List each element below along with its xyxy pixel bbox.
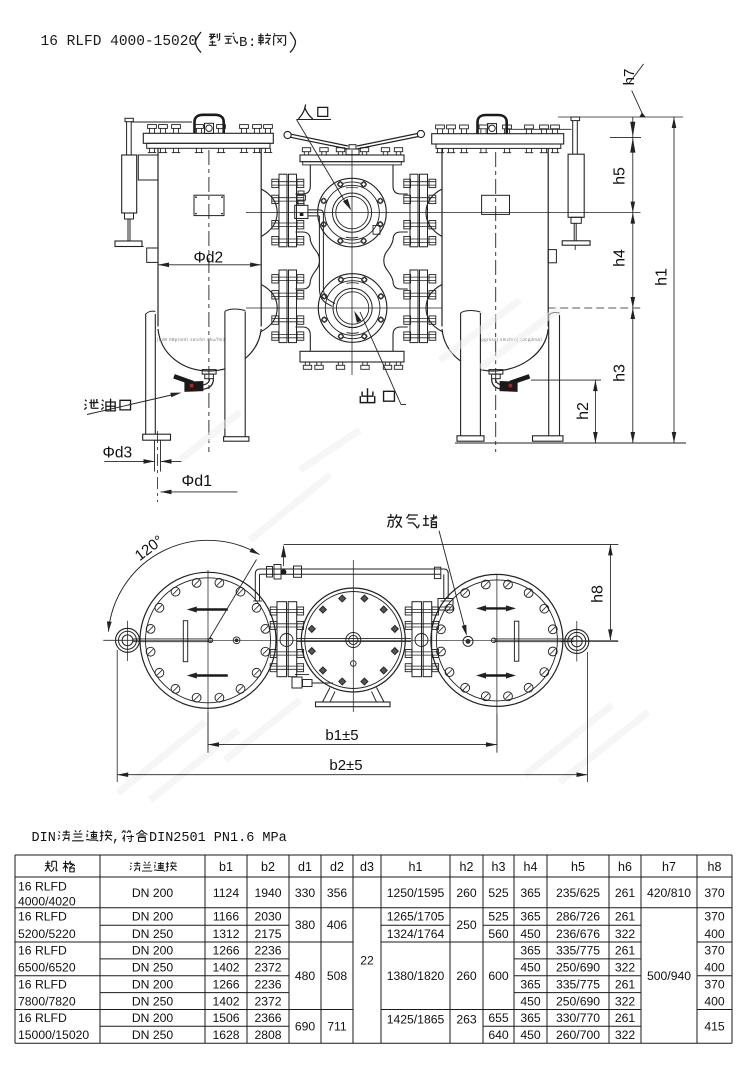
svg-text:h3: h3 <box>612 364 629 382</box>
svg-text:365: 365 <box>520 1011 541 1025</box>
svg-text:b2: b2 <box>261 860 275 874</box>
svg-text:322: 322 <box>615 927 636 941</box>
svg-text:DN 200: DN 200 <box>132 886 174 900</box>
svg-text:250/690: 250/690 <box>556 961 600 975</box>
svg-text:2808: 2808 <box>254 1028 281 1042</box>
svg-text:,: , <box>112 831 120 846</box>
svg-text:DIN2501 PN1.6 MPa: DIN2501 PN1.6 MPa <box>149 831 287 846</box>
svg-text:Φd2: Φd2 <box>194 250 224 267</box>
svg-text:1380/1820: 1380/1820 <box>387 969 445 983</box>
svg-text:h4: h4 <box>612 249 629 267</box>
svg-text:260/700: 260/700 <box>556 1028 600 1042</box>
svg-text:400: 400 <box>704 994 725 1008</box>
svg-text:DN 250: DN 250 <box>132 961 174 975</box>
svg-text:DIN: DIN <box>32 831 56 846</box>
svg-text:261: 261 <box>615 1011 636 1025</box>
svg-text:h1: h1 <box>409 860 423 874</box>
svg-text:b2±5: b2±5 <box>329 757 362 774</box>
svg-text:508: 508 <box>327 969 348 983</box>
svg-text:250/690: 250/690 <box>556 994 600 1008</box>
svg-text:236/676: 236/676 <box>556 927 600 941</box>
svg-text:b1±5: b1±5 <box>325 727 358 744</box>
svg-text:16 RLFD: 16 RLFD <box>18 944 67 958</box>
svg-text:380: 380 <box>295 918 316 932</box>
svg-text:1324/1764: 1324/1764 <box>387 927 445 941</box>
svg-text::: : <box>248 35 256 51</box>
svg-text:600: 600 <box>488 969 509 983</box>
svg-text:6500/6520: 6500/6520 <box>18 961 76 975</box>
svg-text:261: 261 <box>615 910 636 924</box>
svg-text:DN 200: DN 200 <box>132 944 174 958</box>
svg-text:1124: 1124 <box>213 886 239 900</box>
svg-text:322: 322 <box>615 994 636 1008</box>
svg-text:330: 330 <box>295 886 316 900</box>
svg-text:711: 711 <box>327 1020 347 1034</box>
svg-text:365: 365 <box>520 978 541 992</box>
svg-text:260: 260 <box>456 886 477 900</box>
svg-text:370: 370 <box>704 886 725 900</box>
svg-text:2236: 2236 <box>254 944 281 958</box>
svg-text:370: 370 <box>704 910 725 924</box>
svg-text:370: 370 <box>704 944 725 958</box>
svg-text:15000/15020: 15000/15020 <box>18 1028 89 1042</box>
svg-text:16 RLFD: 16 RLFD <box>18 910 67 924</box>
svg-text:365: 365 <box>520 944 541 958</box>
svg-text:365: 365 <box>520 910 541 924</box>
svg-text:1425/1865: 1425/1865 <box>387 1012 445 1026</box>
svg-text:2372: 2372 <box>254 994 281 1008</box>
svg-text:2372: 2372 <box>254 961 281 975</box>
svg-text:h1: h1 <box>654 268 671 286</box>
svg-text:16 RLFD: 16 RLFD <box>18 978 67 992</box>
svg-text:406: 406 <box>327 918 348 932</box>
svg-text:1402: 1402 <box>212 994 239 1008</box>
svg-text:640: 640 <box>488 1028 509 1042</box>
svg-text:690: 690 <box>295 1020 316 1034</box>
svg-text:525: 525 <box>488 886 509 900</box>
svg-text:h7: h7 <box>662 860 676 874</box>
svg-text:h5: h5 <box>571 860 585 874</box>
svg-text:330/770: 330/770 <box>556 1011 600 1025</box>
svg-text:h4: h4 <box>524 860 538 874</box>
svg-text:480: 480 <box>295 969 316 983</box>
svg-text:1266: 1266 <box>212 944 239 958</box>
svg-text:356: 356 <box>327 886 348 900</box>
svg-text:1265/1705: 1265/1705 <box>387 910 445 924</box>
svg-text:263: 263 <box>456 1012 477 1026</box>
svg-text:d2: d2 <box>330 860 344 874</box>
svg-text:1506: 1506 <box>212 1011 239 1025</box>
svg-text:h5: h5 <box>612 167 629 185</box>
svg-text:b1: b1 <box>219 860 233 874</box>
svg-text:370: 370 <box>704 978 725 992</box>
svg-text:400: 400 <box>704 961 725 975</box>
svg-text:16 RLFD 4000-15020: 16 RLFD 4000-15020 <box>41 34 198 50</box>
svg-text:22: 22 <box>360 953 374 967</box>
svg-text:322: 322 <box>615 961 636 975</box>
svg-text:DN 200: DN 200 <box>132 910 174 924</box>
svg-text:d1: d1 <box>298 860 312 874</box>
svg-text:286/726: 286/726 <box>556 910 600 924</box>
svg-text:450: 450 <box>520 927 541 941</box>
svg-text:365: 365 <box>520 886 541 900</box>
svg-text:DN 250: DN 250 <box>132 994 174 1008</box>
svg-text:2236: 2236 <box>254 978 281 992</box>
svg-text:1166: 1166 <box>213 910 239 924</box>
svg-text:560: 560 <box>488 927 509 941</box>
svg-text:1940: 1940 <box>254 886 281 900</box>
svg-text:DN 200: DN 200 <box>132 1011 174 1025</box>
svg-text:335/775: 335/775 <box>556 944 600 958</box>
svg-text:DN 250: DN 250 <box>132 1028 174 1042</box>
svg-text:16 RLFD: 16 RLFD <box>18 1011 67 1025</box>
svg-text:2030: 2030 <box>254 910 281 924</box>
svg-text:B: B <box>239 35 247 51</box>
svg-text:2175: 2175 <box>254 927 281 941</box>
svg-text:1250/1595: 1250/1595 <box>387 886 445 900</box>
svg-text:450: 450 <box>520 1028 541 1042</box>
svg-text:235/625: 235/625 <box>556 886 600 900</box>
svg-text:420/810: 420/810 <box>647 886 691 900</box>
svg-text:Φd1: Φd1 <box>182 473 213 490</box>
svg-text:DN 200: DN 200 <box>132 978 174 992</box>
svg-text:h8: h8 <box>590 585 607 603</box>
svg-text:d3: d3 <box>360 860 374 874</box>
svg-text:h2: h2 <box>575 402 592 420</box>
svg-text:h6: h6 <box>618 860 632 874</box>
svg-text:1628: 1628 <box>212 1028 239 1042</box>
svg-text:261: 261 <box>615 886 636 900</box>
svg-text:2366: 2366 <box>254 1011 281 1025</box>
svg-text:335/775: 335/775 <box>556 978 600 992</box>
svg-text:h3: h3 <box>492 860 506 874</box>
svg-text:450: 450 <box>520 961 541 975</box>
svg-text:525: 525 <box>488 910 509 924</box>
svg-text:Φd3: Φd3 <box>103 445 133 462</box>
svg-text:5200/5220: 5200/5220 <box>18 927 76 941</box>
svg-text:260: 260 <box>456 969 477 983</box>
svg-text:h2: h2 <box>460 860 474 874</box>
svg-text:500/940: 500/940 <box>647 969 691 983</box>
svg-text:DN 250: DN 250 <box>132 927 174 941</box>
svg-text:7800/7820: 7800/7820 <box>18 994 76 1008</box>
svg-text:h8: h8 <box>708 860 722 874</box>
svg-text:450: 450 <box>520 994 541 1008</box>
svg-text:1266: 1266 <box>212 978 239 992</box>
svg-text:1312: 1312 <box>212 927 239 941</box>
svg-text:261: 261 <box>615 944 636 958</box>
svg-text:322: 322 <box>615 1028 636 1042</box>
svg-text:400: 400 <box>704 927 725 941</box>
svg-text:250: 250 <box>456 918 477 932</box>
svg-text:261: 261 <box>615 978 636 992</box>
svg-text:16 RLFD: 16 RLFD <box>18 880 67 894</box>
svg-text:415: 415 <box>704 1020 725 1034</box>
svg-text:4000/4020: 4000/4020 <box>18 895 76 909</box>
svg-text:1402: 1402 <box>212 961 239 975</box>
svg-text:655: 655 <box>488 1011 509 1025</box>
